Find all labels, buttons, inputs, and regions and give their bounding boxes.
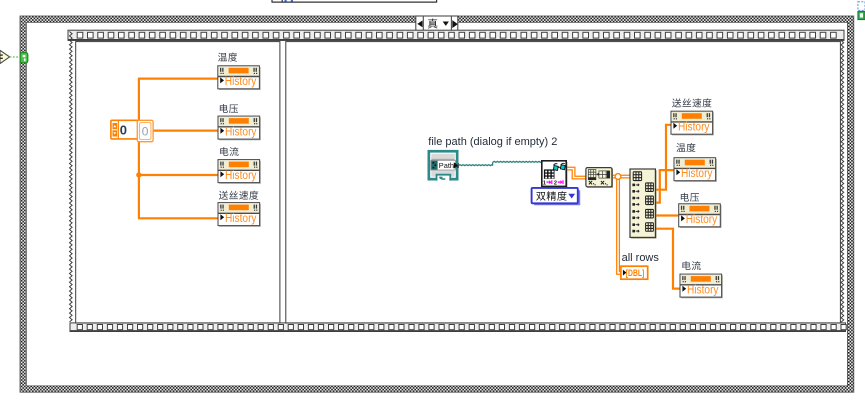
- svg-text:2: 2: [554, 180, 557, 186]
- svg-text:all rows: all rows: [622, 252, 660, 264]
- svg-text:[DBL]: [DBL]: [626, 268, 645, 278]
- svg-text:1: 1: [543, 180, 546, 186]
- svg-text:0: 0: [142, 125, 149, 139]
- svg-text:file path (dialog if empty) 2: file path (dialog if empty) 2: [428, 136, 557, 148]
- svg-text:0: 0: [120, 123, 127, 138]
